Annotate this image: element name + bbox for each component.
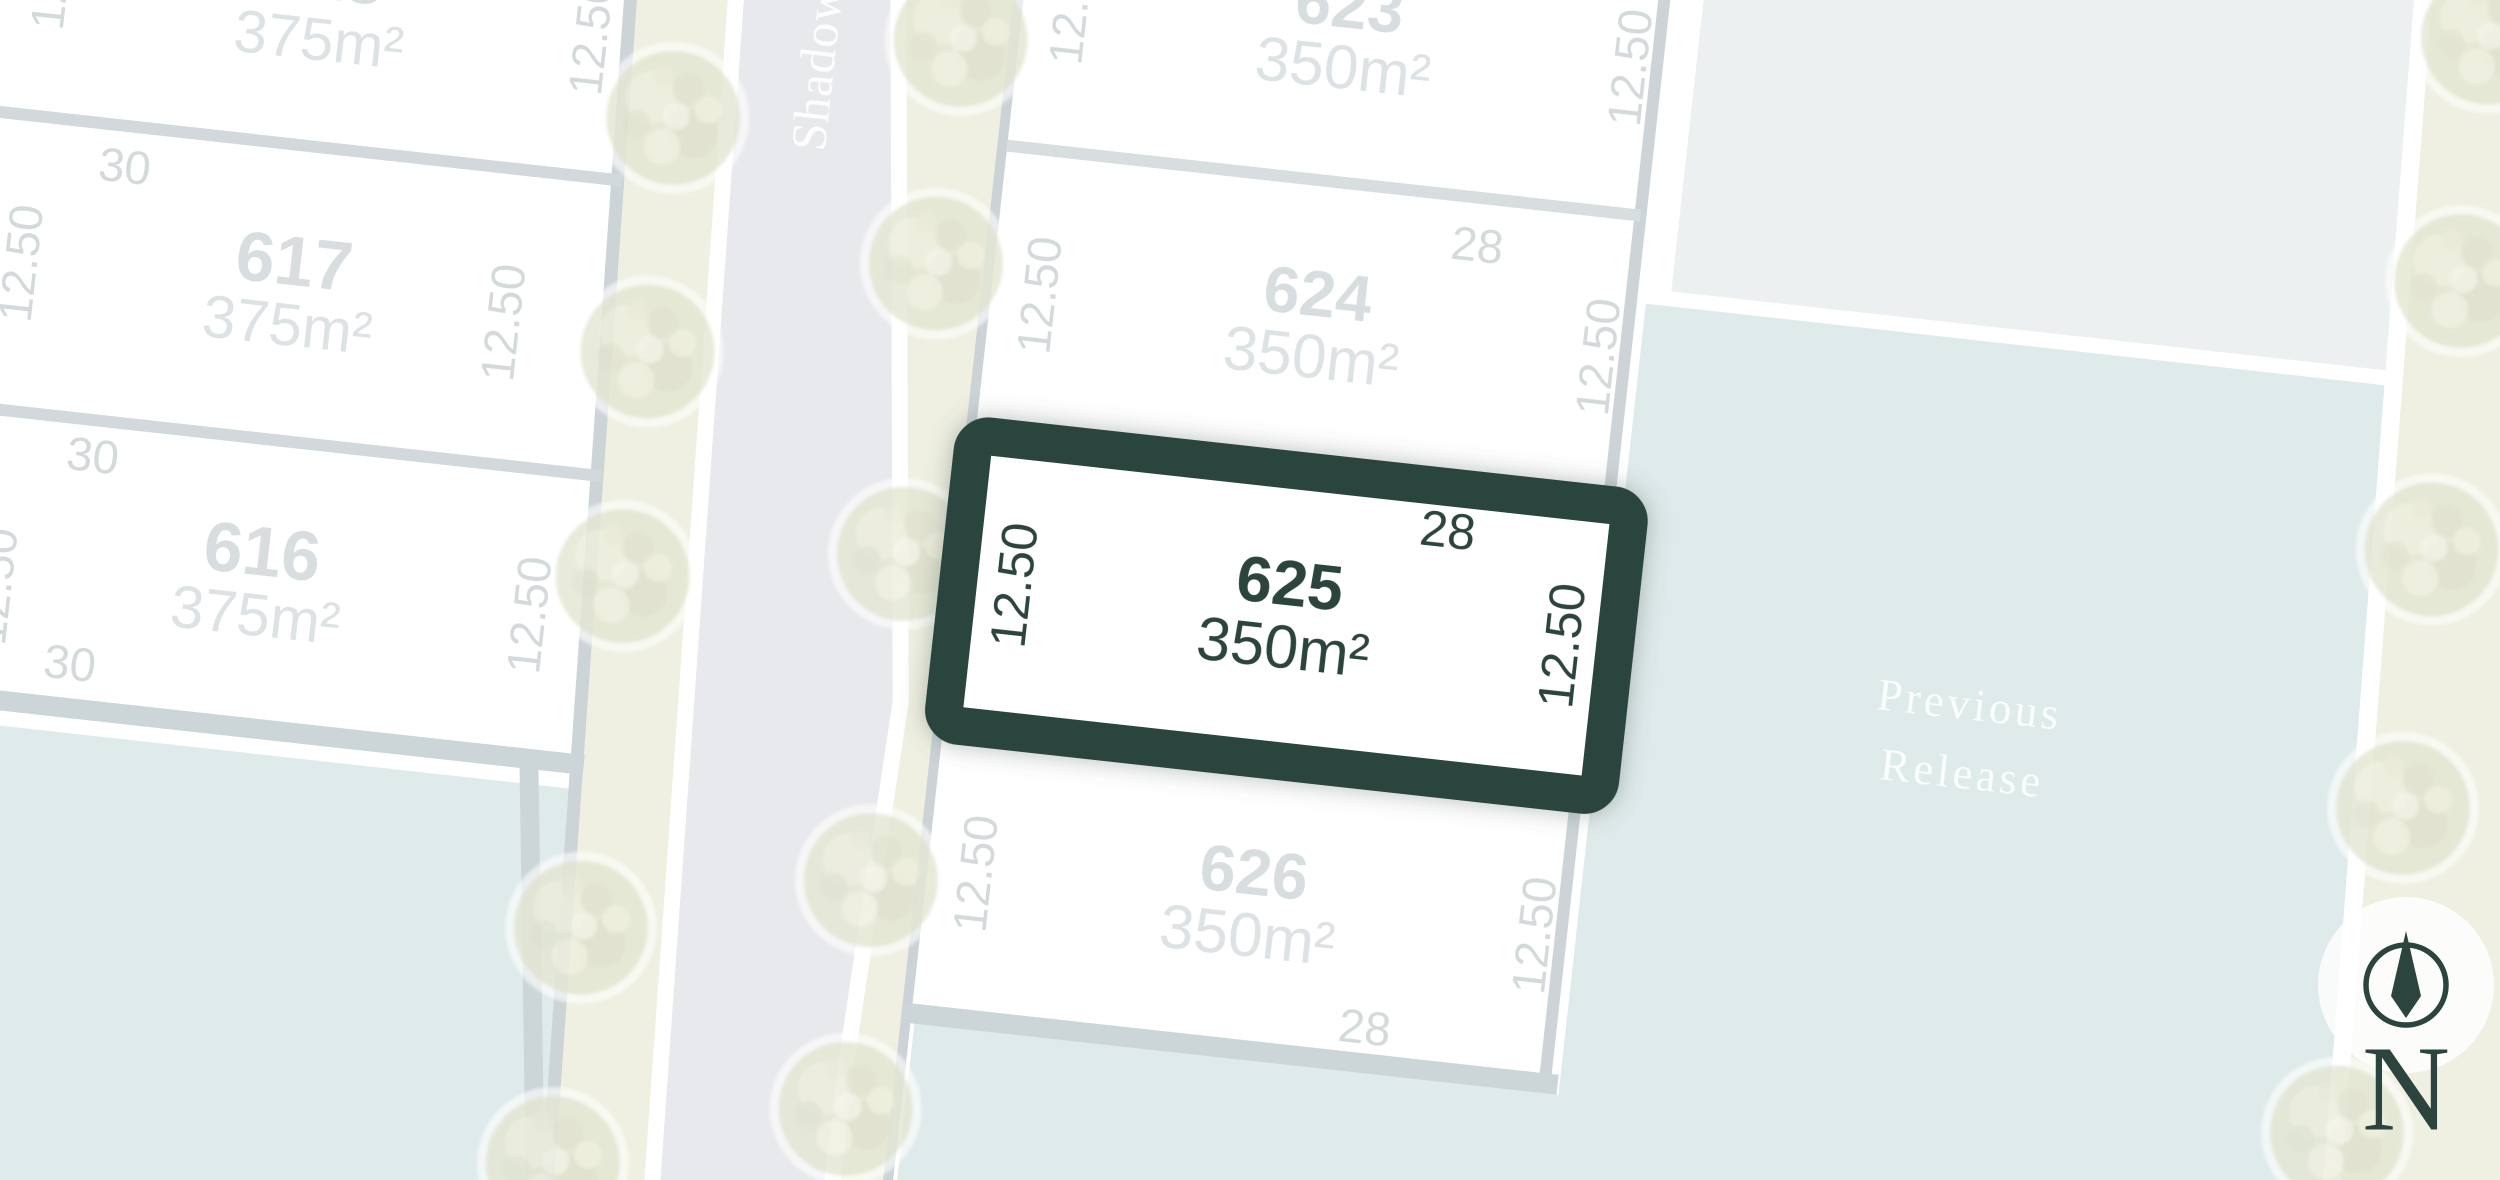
svg-text:28: 28 <box>1417 499 1478 561</box>
svg-text:28: 28 <box>1336 998 1394 1056</box>
svg-text:30: 30 <box>96 137 154 195</box>
svg-text:30: 30 <box>64 426 122 484</box>
svg-text:28: 28 <box>1448 216 1506 274</box>
svg-text:N: N <box>2362 1022 2450 1157</box>
svg-text:30: 30 <box>41 634 99 692</box>
